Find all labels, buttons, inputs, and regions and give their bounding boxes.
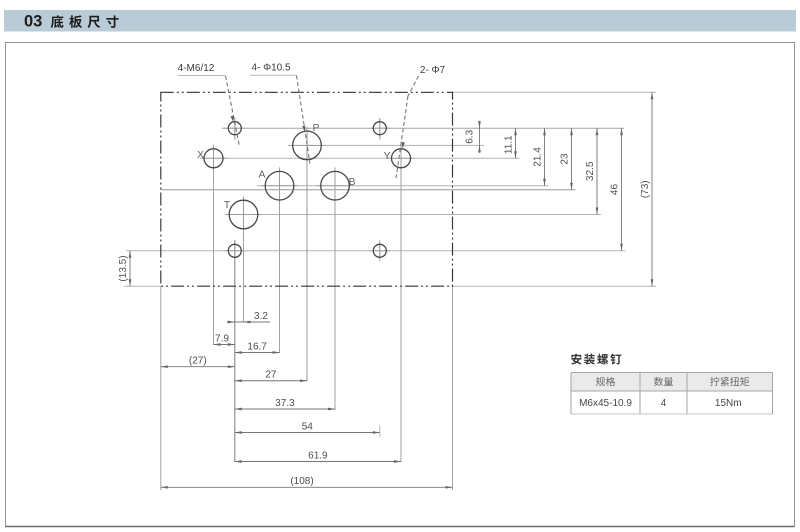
svg-text:23: 23 — [559, 153, 570, 165]
svg-text:7.9: 7.9 — [215, 333, 229, 344]
svg-text:11.1: 11.1 — [503, 135, 514, 154]
svg-text:(73): (73) — [640, 180, 651, 198]
svg-text:M6x45-10.9: M6x45-10.9 — [579, 398, 632, 409]
svg-text:54: 54 — [302, 421, 314, 432]
svg-text:15Nm: 15Nm — [715, 398, 742, 409]
svg-text:B: B — [349, 177, 356, 188]
svg-text:T: T — [224, 200, 231, 211]
svg-text:Y: Y — [384, 151, 391, 162]
svg-text:6.3: 6.3 — [465, 129, 476, 143]
svg-text:21.4: 21.4 — [532, 147, 543, 167]
svg-text:A: A — [258, 170, 265, 181]
svg-text:(13.5): (13.5) — [118, 255, 129, 281]
svg-text:P: P — [313, 123, 320, 134]
svg-text:32.5: 32.5 — [585, 161, 596, 181]
svg-text:X: X — [197, 150, 204, 161]
svg-text:27: 27 — [265, 370, 277, 381]
svg-text:46: 46 — [609, 184, 620, 196]
svg-text:2- Φ7: 2- Φ7 — [420, 65, 446, 76]
svg-text:37.3: 37.3 — [275, 398, 295, 409]
svg-text:4- Φ10.5: 4- Φ10.5 — [251, 63, 291, 74]
svg-text:(27): (27) — [189, 356, 207, 367]
svg-text:(108): (108) — [290, 476, 313, 487]
svg-text:3.2: 3.2 — [254, 311, 268, 322]
svg-text:4: 4 — [661, 398, 667, 409]
svg-text:4-M6/12: 4-M6/12 — [178, 63, 215, 74]
svg-text:61.9: 61.9 — [308, 450, 328, 461]
svg-text:03: 03 — [24, 12, 42, 30]
svg-text:16.7: 16.7 — [247, 341, 267, 352]
